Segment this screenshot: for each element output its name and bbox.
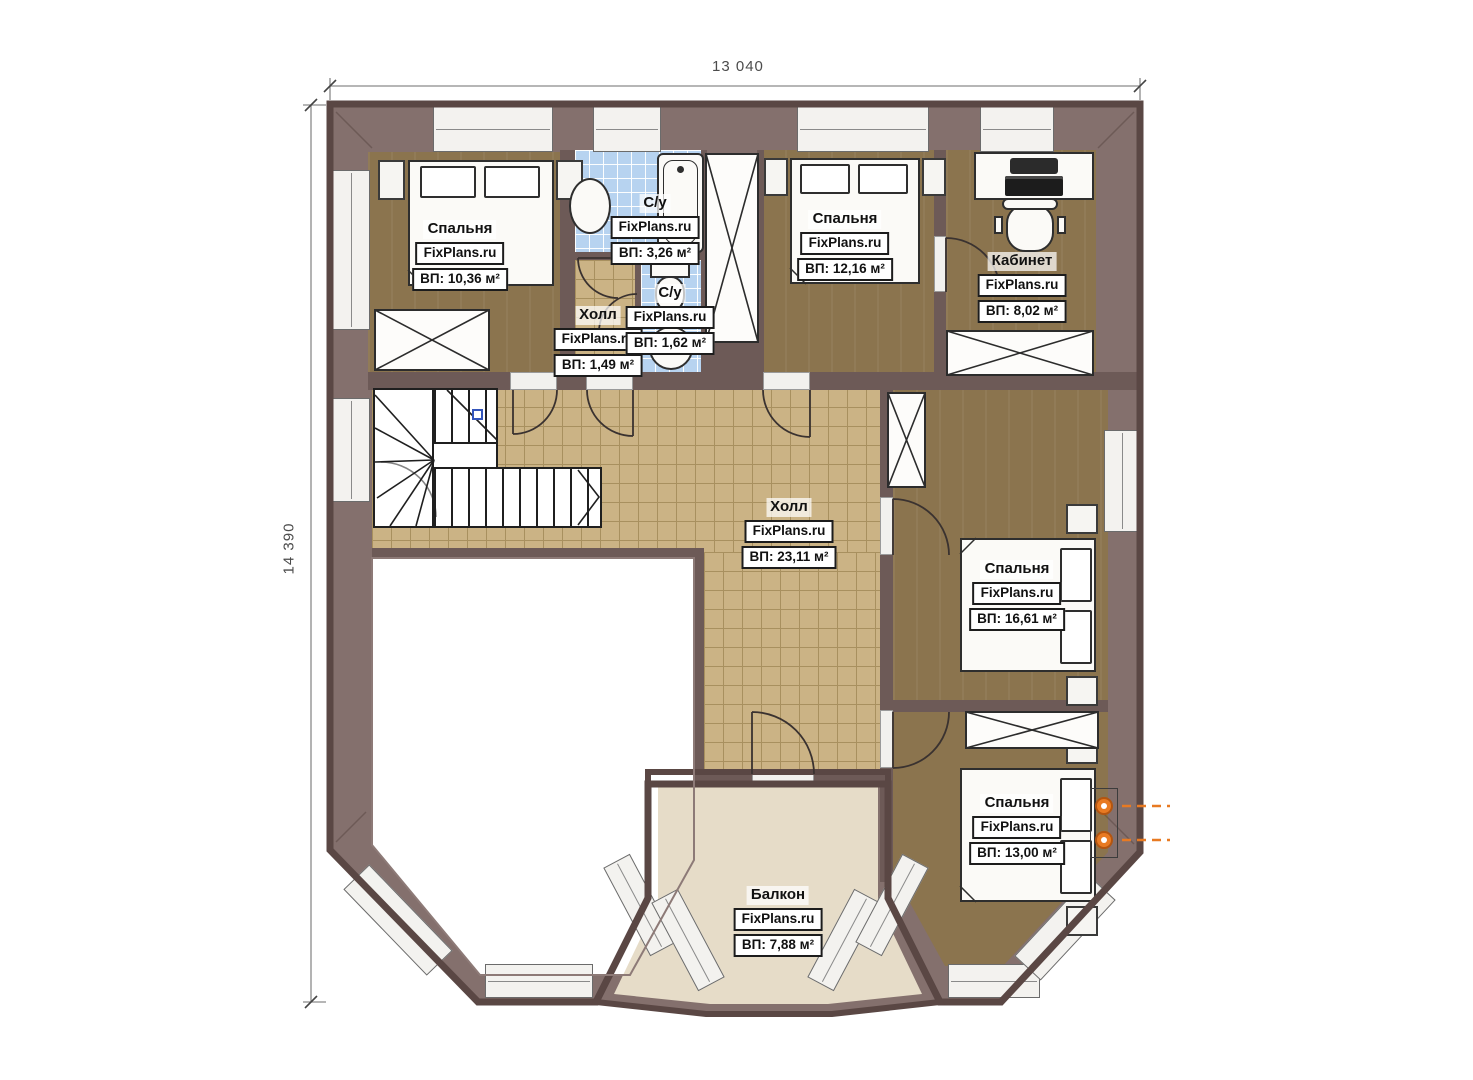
window-top-bathroom1 bbox=[593, 106, 661, 152]
wall-lamp-icon bbox=[1095, 831, 1113, 849]
room-area: ВП: 3,26 м² bbox=[611, 242, 699, 265]
desk-laptop-base bbox=[1005, 176, 1063, 196]
room-area: ВП: 1,49 м² bbox=[554, 354, 642, 377]
room-label-bedroom-2: Спальня FixPlans.ru ВП: 12,16 м² bbox=[797, 210, 893, 281]
room-brand: FixPlans.ru bbox=[745, 520, 834, 543]
room-brand: FixPlans.ru bbox=[734, 908, 823, 931]
room-label-bedroom-1: Спальня FixPlans.ru ВП: 10,36 м² bbox=[412, 220, 508, 291]
window-left-bedroom1 bbox=[332, 170, 370, 330]
window-top-office bbox=[980, 106, 1054, 152]
room-area: ВП: 10,36 м² bbox=[412, 268, 508, 291]
pillow-icon bbox=[858, 164, 908, 194]
nightstand-icon bbox=[922, 158, 946, 196]
room-label-bedroom-3: Спальня FixPlans.ru ВП: 16,61 м² bbox=[969, 560, 1065, 631]
room-area: ВП: 8,02 м² bbox=[978, 300, 1066, 323]
room-area: ВП: 16,61 м² bbox=[969, 608, 1065, 631]
nightstand-icon bbox=[764, 158, 788, 196]
wall-lamp-icon bbox=[1095, 797, 1113, 815]
wall-corridor-west bbox=[694, 552, 704, 774]
room-label-balcony: Балкон FixPlans.ru ВП: 7,88 м² bbox=[734, 886, 823, 957]
hall-main-floor-corridor bbox=[704, 552, 882, 774]
door-opening-bedroom3[interactable] bbox=[880, 497, 893, 555]
room-area: ВП: 7,88 м² bbox=[734, 934, 822, 957]
room-name: Спальня bbox=[424, 220, 497, 239]
room-label-office: Кабинет FixPlans.ru ВП: 8,02 м² bbox=[978, 252, 1067, 323]
window-right-bedroom3 bbox=[1104, 430, 1140, 532]
room-name: Спальня bbox=[981, 794, 1054, 813]
room-name: Балкон bbox=[747, 886, 809, 905]
room-name: С/у bbox=[654, 284, 685, 303]
room-name: Спальня bbox=[981, 560, 1054, 579]
dimension-height: 14 390 bbox=[280, 523, 297, 575]
nightstand-icon bbox=[1066, 906, 1098, 936]
nightstand-icon bbox=[1066, 504, 1098, 534]
nightstand-icon bbox=[378, 160, 405, 200]
door-opening-bedroom2[interactable] bbox=[763, 372, 810, 390]
wall-hall-bedrooms-east bbox=[880, 390, 893, 882]
pillow-icon bbox=[800, 164, 850, 194]
room-brand: FixPlans.ru bbox=[416, 242, 505, 265]
door-opening-bedroom4[interactable] bbox=[880, 710, 893, 768]
room-name: Кабинет bbox=[988, 252, 1057, 271]
room-area: ВП: 1,62 м² bbox=[626, 332, 714, 355]
pillow-icon bbox=[420, 166, 476, 198]
room-brand: FixPlans.ru bbox=[801, 232, 890, 255]
room-name: Спальня bbox=[809, 210, 882, 229]
room-name: С/у bbox=[639, 194, 670, 213]
stairs-upper-run[interactable] bbox=[432, 388, 498, 444]
room-label-bathroom-2: С/у FixPlans.ru ВП: 1,62 м² bbox=[626, 284, 715, 355]
nightstand-icon bbox=[1066, 734, 1098, 764]
stairs-winder[interactable] bbox=[373, 388, 434, 528]
window-left-stairs bbox=[332, 398, 370, 502]
room-name: Холл bbox=[575, 306, 621, 325]
office-chair-icon bbox=[1006, 204, 1054, 252]
room-label-hall-main: Холл FixPlans.ru ВП: 23,11 м² bbox=[742, 498, 837, 569]
room-brand: FixPlans.ru bbox=[973, 582, 1062, 605]
office-chair-back bbox=[1002, 198, 1058, 210]
room-brand: FixPlans.ru bbox=[611, 216, 700, 239]
room-area: ВП: 12,16 м² bbox=[797, 258, 893, 281]
room-brand: FixPlans.ru bbox=[978, 274, 1067, 297]
sink-icon bbox=[569, 178, 611, 234]
desk-laptop-icon bbox=[1010, 158, 1058, 174]
door-opening-bedroom1[interactable] bbox=[510, 372, 557, 390]
window-bay-right-bottom bbox=[948, 964, 1040, 998]
room-name: Холл bbox=[766, 498, 812, 517]
room-label-bedroom-4: Спальня FixPlans.ru ВП: 13,00 м² bbox=[969, 794, 1065, 865]
wall-hall-void bbox=[372, 548, 704, 558]
floor-plan: 13 040 14 390 bbox=[0, 0, 1473, 1080]
room-brand: FixPlans.ru bbox=[973, 816, 1062, 839]
bathtub-drain bbox=[677, 166, 684, 173]
dimension-width: 13 040 bbox=[712, 58, 764, 75]
stairs-landing-box bbox=[432, 442, 498, 469]
nightstand-icon bbox=[1066, 676, 1098, 706]
door-opening-balcony[interactable] bbox=[752, 772, 814, 784]
window-top-bedroom1 bbox=[433, 106, 553, 152]
pillow-icon bbox=[484, 166, 540, 198]
room-area: ВП: 23,11 м² bbox=[742, 546, 837, 569]
room-area: ВП: 13,00 м² bbox=[969, 842, 1065, 865]
door-opening-office[interactable] bbox=[934, 236, 946, 292]
window-top-bedroom2 bbox=[797, 106, 929, 152]
office-chair-arm bbox=[994, 216, 1003, 234]
wall-closet-bedroom2 bbox=[757, 150, 764, 372]
stairs-lower-run[interactable] bbox=[432, 467, 602, 528]
office-chair-arm bbox=[1057, 216, 1066, 234]
room-brand: FixPlans.ru bbox=[626, 306, 715, 329]
room-label-bathroom-1: С/у FixPlans.ru ВП: 3,26 м² bbox=[611, 194, 700, 265]
window-bay-left-bottom bbox=[485, 964, 593, 998]
